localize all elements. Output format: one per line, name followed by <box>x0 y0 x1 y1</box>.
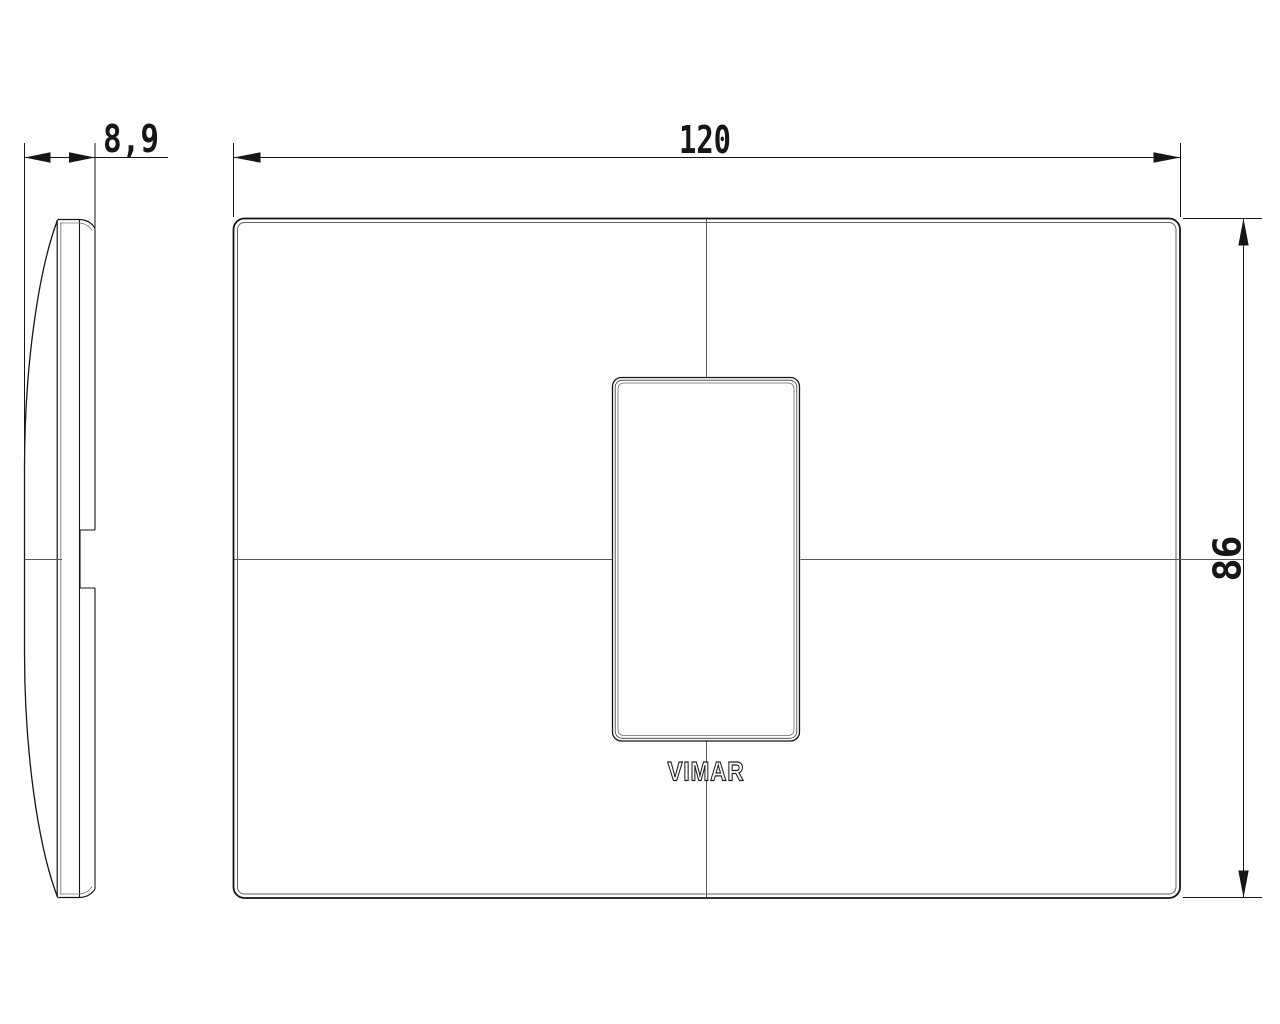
dimension-width: 120 <box>234 118 1181 217</box>
side-clip-notch <box>80 530 95 588</box>
aperture-inner-edge <box>618 383 794 736</box>
side-bottom-edge-inner <box>60 887 92 895</box>
front-view: VIMAR <box>234 219 1244 899</box>
depth-dimension-label: 8,9 <box>103 117 159 161</box>
technical-drawing-canvas: 8,9 VIMAR 120 86 <box>0 0 1280 1024</box>
aperture-outer-edge <box>613 378 800 742</box>
side-top-edge-inner <box>60 223 92 231</box>
side-front-curve <box>25 220 58 897</box>
dimension-depth: 8,9 <box>25 117 169 472</box>
depth-arrow-left-icon <box>25 152 51 162</box>
dimension-height: 86 <box>1183 219 1262 898</box>
side-profile-view <box>25 220 96 898</box>
depth-arrow-right-icon <box>69 152 95 162</box>
width-arrow-left-icon <box>234 152 261 162</box>
height-arrow-down-icon <box>1238 871 1248 898</box>
height-dimension-label: 86 <box>1206 536 1250 582</box>
drawing-svg: 8,9 VIMAR 120 86 <box>0 0 1280 1024</box>
vimar-logo: VIMAR <box>668 757 745 787</box>
width-arrow-right-icon <box>1154 152 1181 162</box>
height-arrow-up-icon <box>1238 219 1248 246</box>
width-dimension-label: 120 <box>679 118 731 162</box>
aperture-middle-edge <box>615 380 797 738</box>
